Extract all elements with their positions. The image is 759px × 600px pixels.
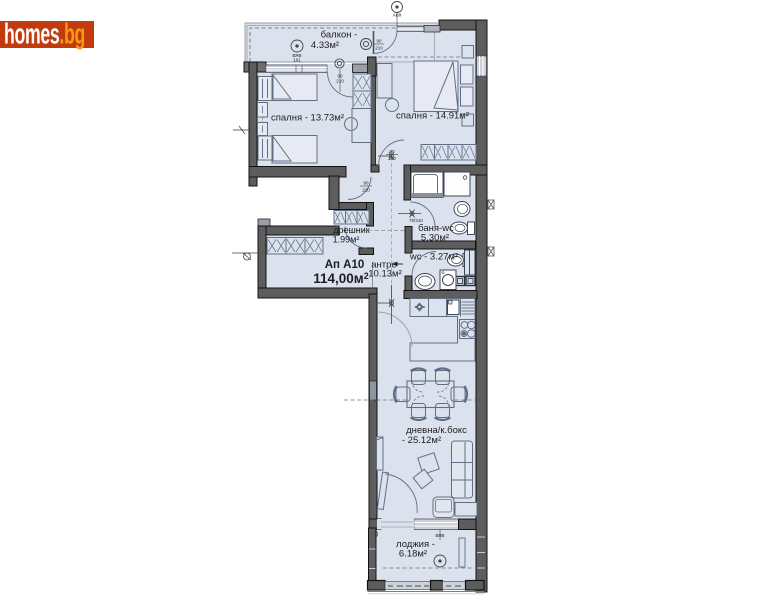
svg-text:101: 101 [293,58,301,63]
svg-text:90: 90 [389,149,395,154]
svg-text:210: 210 [375,46,383,51]
svg-text:1.99м²: 1.99м² [333,235,360,245]
svg-text:70/210: 70/210 [409,218,423,223]
svg-text:10.13м²: 10.13м² [368,269,401,280]
svg-text:Ап А10: Ап А10 [325,259,365,271]
svg-text:90: 90 [363,181,369,186]
svg-text:спалня - 13.73м²: спалня - 13.73м² [271,113,344,124]
svg-text:4.33м²: 4.33м² [311,40,339,51]
svg-text:спалня - 14.91м²: спалня - 14.91м² [396,111,469,122]
svg-text:- 25.12м²: - 25.12м² [402,435,441,446]
svg-text:210: 210 [362,188,370,193]
svg-text:90: 90 [376,39,382,44]
svg-text:homes.bg: homes.bg [4,19,85,50]
svg-text:6.18м²: 6.18м² [399,549,427,560]
svg-text:114,00м2: 114,00м2 [313,271,369,286]
svg-text:балкон -: балкон - [321,30,358,41]
svg-text:wc - 3.27м²: wc - 3.27м² [409,252,458,263]
svg-text:дрешник: дрешник [333,225,369,235]
svg-text:5.30м²: 5.30м² [421,233,449,244]
